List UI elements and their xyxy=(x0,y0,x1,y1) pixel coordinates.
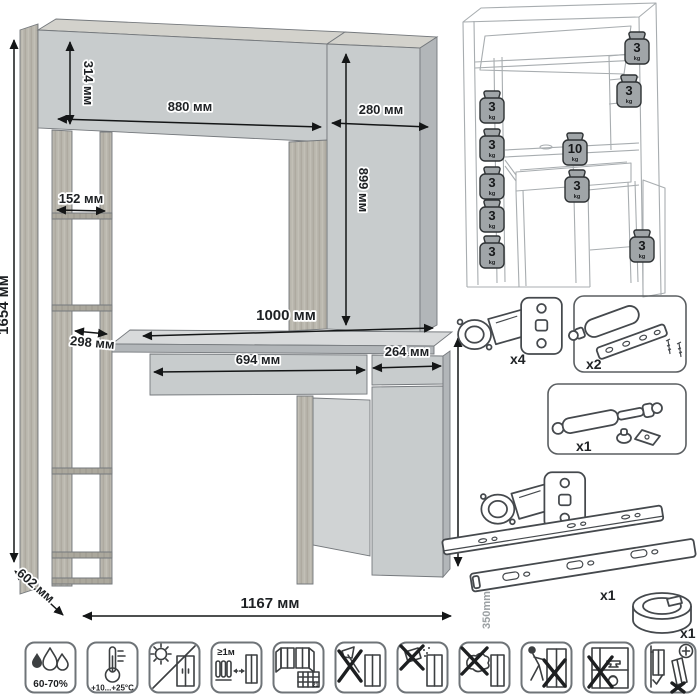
dim-shelf-width-label: 152 мм xyxy=(59,191,104,206)
svg-text:3: 3 xyxy=(488,208,495,223)
underdesk-inner-wall xyxy=(313,398,370,556)
svg-text:3: 3 xyxy=(488,137,495,152)
weight-left-shelf-5: 3 kg xyxy=(480,236,504,268)
svg-text:21: 21 xyxy=(312,683,318,689)
svg-text:kg: kg xyxy=(489,191,495,197)
weight-base-cabinet: 3 kg xyxy=(630,230,654,262)
weight-desktop: 10 kg xyxy=(563,133,587,165)
side-panel xyxy=(20,24,38,594)
humidity-icon: 60-70% xyxy=(24,641,77,694)
svg-text:kg: kg xyxy=(626,99,632,105)
dim-top-cabinet-width-label: 280 мм xyxy=(359,102,404,117)
dim-total-height-label: 1654 мм xyxy=(0,275,12,335)
svg-text:x1: x1 xyxy=(600,587,616,603)
svg-text:3: 3 xyxy=(573,178,580,193)
svg-text:3: 3 xyxy=(638,238,645,253)
hardware-cable-grommet: x1 xyxy=(633,593,696,641)
svg-text:3: 3 xyxy=(488,99,495,114)
dim-drawer-width-label: 694 мм xyxy=(236,352,281,367)
svg-text:kg: kg xyxy=(489,115,495,121)
center-support xyxy=(297,396,313,584)
cabinet-door xyxy=(327,44,420,334)
temperature-icon: +10...+25°C xyxy=(86,641,139,694)
svg-text:kg: kg xyxy=(489,224,495,230)
weight-right-shelf: 3 kg xyxy=(617,75,641,107)
svg-text:x1: x1 xyxy=(680,625,696,641)
svg-text:3: 3 xyxy=(633,40,640,55)
cabinet-inner-wall xyxy=(289,140,327,331)
svg-text:+10...+25°C: +10...+25°C xyxy=(91,684,134,693)
no-sharp-tools-icon xyxy=(334,641,387,694)
svg-text:x2: x2 xyxy=(586,356,602,372)
svg-text:3: 3 xyxy=(488,244,495,259)
no-direct-sunlight-icon xyxy=(148,641,201,694)
weight-left-shelf-3: 3 kg xyxy=(480,167,504,199)
weight-left-shelf-1: 3 kg xyxy=(480,91,504,123)
furniture-dimension-drawing: 1654 мм 314 мм 880 мм 280 мм 899 мм 152 … xyxy=(0,0,470,645)
hardware-list: x4 x2 xyxy=(428,288,700,644)
assembly-sheet: 1654 мм 314 мм 880 мм 280 мм 899 мм 152 … xyxy=(0,0,700,700)
dim-total-height: 1654 мм xyxy=(0,40,14,562)
svg-text:x1: x1 xyxy=(576,438,592,454)
svg-text:≥1м: ≥1м xyxy=(217,647,235,658)
hardware-gas-lift: x1 xyxy=(548,384,686,454)
dim-total-width: 1167 мм xyxy=(83,595,451,616)
svg-text:kg: kg xyxy=(489,153,495,159)
svg-text:3: 3 xyxy=(625,83,632,98)
no-abrasive-cleaners-icon xyxy=(396,641,449,694)
svg-text:10: 10 xyxy=(568,141,582,156)
ventilation-icon: 21 xyxy=(272,641,325,694)
care-icon-strip: 60-70% +10...+25°C ≥1м xyxy=(0,641,700,697)
weight-hutch-top: 3 kg xyxy=(625,32,649,64)
weight-left-shelf-2: 3 kg xyxy=(480,129,504,161)
dim-desktop-width-label: 1000 мм xyxy=(256,307,316,324)
dim-hutch-width-label: 880 мм xyxy=(168,99,213,114)
no-dragging-icon xyxy=(520,641,573,694)
svg-text:kg: kg xyxy=(489,260,495,266)
svg-text:3: 3 xyxy=(488,175,495,190)
dim-hutch-height-label: 314 мм xyxy=(81,61,96,106)
hardware-hinge-4: x4 xyxy=(458,298,562,367)
weight-drawer: 3 kg xyxy=(565,170,589,202)
load-capacity-diagram: 3 kg 3 kg 3 kg 3 kg 10 kg 3 kg xyxy=(428,0,700,300)
weight-left-shelf-4: 3 kg xyxy=(480,200,504,232)
svg-text:kg: kg xyxy=(634,56,640,62)
dim-total-width-label: 1167 мм xyxy=(241,595,300,612)
no-wet-cloth-icon xyxy=(458,641,511,694)
hardware-door-damper: x2 xyxy=(566,296,686,372)
svg-text:kg: kg xyxy=(572,157,578,163)
no-overloading-icon xyxy=(582,641,635,694)
heat-source-distance-icon: ≥1м xyxy=(210,641,263,694)
screws xyxy=(666,339,682,357)
slide-length-label: 350mm xyxy=(481,591,493,629)
svg-text:kg: kg xyxy=(574,194,580,200)
wall-anchoring-required-icon xyxy=(644,641,697,694)
dim-door-width-label: 264 мм xyxy=(385,344,430,359)
svg-text:kg: kg xyxy=(639,254,645,260)
svg-text:x4: x4 xyxy=(510,351,526,367)
svg-text:60-70%: 60-70% xyxy=(33,679,68,690)
dim-top-cabinet-height-label: 899 мм xyxy=(356,168,371,213)
dim-shelf-depth-label: 298 мм xyxy=(70,333,116,352)
